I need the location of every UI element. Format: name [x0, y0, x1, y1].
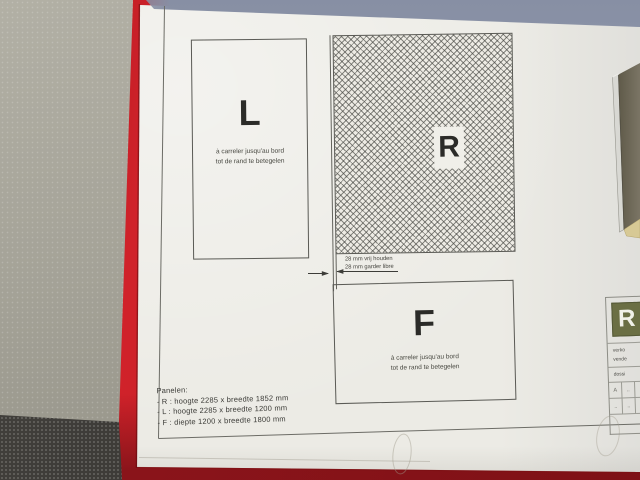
panel-l-note-fr: à carreler jusqu'au bord: [216, 147, 285, 158]
revision-cell: ..: [622, 382, 636, 398]
title-block: R verko vende dossi A .. .. ..: [605, 295, 640, 435]
dim-arrowhead-left: [336, 269, 343, 274]
page-curl-line: [139, 458, 430, 462]
revision-cell: ..: [610, 398, 624, 414]
panel-f-note: à carreler jusqu'au bord tot de rand te …: [390, 352, 459, 374]
panel-r-label: R: [438, 133, 460, 163]
revision-cell: ..: [623, 398, 637, 414]
folder-edge-line: [136, 4, 139, 468]
revision-cell: [636, 397, 640, 414]
panel-l-label: L: [238, 95, 260, 131]
panel-r-rect: R: [332, 33, 515, 254]
dimension-note: 28 mm vrij houden 28 mm garder libre: [345, 255, 425, 272]
dim-arrowhead-right: [322, 271, 329, 276]
dimension-note-fr: 28 mm garder libre: [345, 263, 425, 272]
title-block-revision-table: A .. .. ..: [609, 380, 640, 415]
company-logo: R: [611, 302, 640, 337]
technical-drawing: L à carreler jusqu'au bord tot de rand t…: [0, 0, 640, 480]
title-block-seller-row: verko vende: [608, 341, 640, 367]
folder-bottom-edge-line: [137, 468, 640, 473]
water-mark: [391, 433, 413, 475]
panel-l-rect: L à carreler jusqu'au bord tot de rand t…: [191, 38, 309, 259]
photo-of-technical-drawing: L à carreler jusqu'au bord tot de rand t…: [0, 0, 640, 480]
seller-label-fr: vende: [613, 354, 640, 364]
revision-cell: A: [609, 382, 623, 398]
panel-f-label: F: [413, 305, 436, 342]
panel-f-note-nl: tot de rand te betegelen: [391, 362, 460, 374]
panel-l-note: à carreler jusqu'au bord tot de rand te …: [216, 147, 285, 168]
frame-left-line: [159, 6, 165, 439]
panel-r-label-patch: R: [434, 126, 465, 168]
title-block-dossier-row: dossi: [608, 365, 640, 382]
revision-cell: [635, 381, 640, 398]
panel-legend: Panelen: - R : hoogte 2285 x breedte 185…: [156, 380, 367, 429]
panel-l-note-nl: tot de rand te betegelen: [216, 157, 285, 168]
